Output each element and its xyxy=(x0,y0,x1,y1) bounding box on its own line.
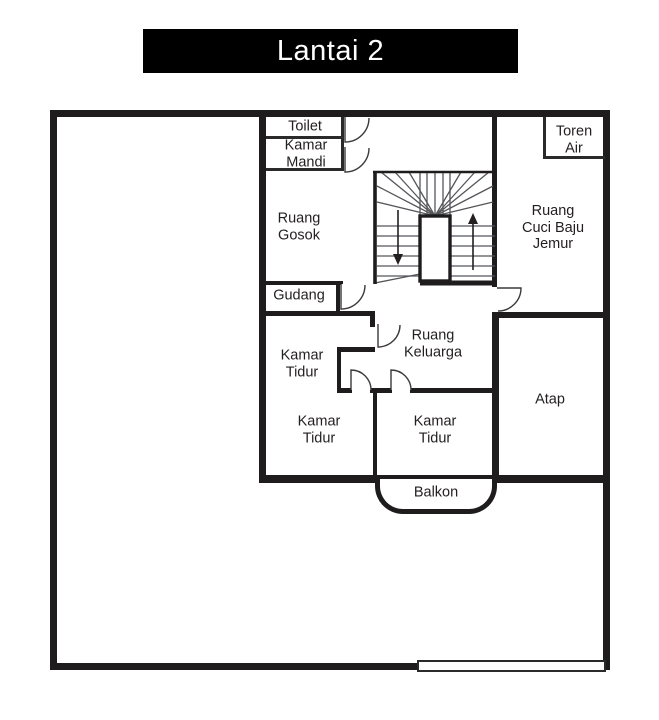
kamar-tidur-middle-door-arc xyxy=(377,324,401,348)
outer-boundary-wall xyxy=(50,110,610,670)
entrance-gate xyxy=(417,660,606,672)
kamar-mandi-door-arc xyxy=(344,147,370,173)
wall-bedroom-mid-right-upper xyxy=(370,315,375,327)
ruang-cuci-door-arc xyxy=(497,287,523,313)
wall-torenair-left xyxy=(543,117,546,159)
wall-bedroom-mid-step-v xyxy=(337,347,341,393)
toilet-door-arc xyxy=(344,117,370,143)
title-bar: Lantai 2 xyxy=(143,29,518,73)
room-label-toilet: Toilet xyxy=(288,119,322,136)
room-label-ruang-gosok: Ruang Gosok xyxy=(278,210,321,243)
room-label-ruang-cuci: Ruang Cuci Baju Jemur xyxy=(522,203,584,253)
wall-keluarga-bottom-3 xyxy=(410,388,497,393)
room-label-ruang-keluarga: Ruang Keluarga xyxy=(404,327,462,360)
stairs-down-arrow xyxy=(393,210,403,265)
room-label-kamar-mandi: Kamar Mandi xyxy=(285,137,328,170)
staircase xyxy=(373,170,497,288)
room-label-kamar-tidur-bottom-right: Kamar Tidur xyxy=(414,413,457,446)
kamar-tidur-left-door-arc xyxy=(350,369,372,391)
wall-gudang-top xyxy=(259,281,343,285)
room-label-gudang: Gudang xyxy=(273,288,325,305)
stairs-up-arrow xyxy=(468,213,478,270)
kamar-tidur-right-door-arc xyxy=(390,369,412,391)
page-title: Lantai 2 xyxy=(277,35,384,68)
room-label-kamar-tidur-bottom-left: Kamar Tidur xyxy=(298,413,341,446)
balkon-outline: Balkon xyxy=(375,479,497,514)
wall-bedroom-mid-step-h xyxy=(337,347,375,352)
room-label-toren-air: Toren Air xyxy=(556,123,592,156)
wall-gudang-bottom xyxy=(259,311,375,316)
wall-main-vertical xyxy=(259,110,266,483)
room-label-kamar-tidur-middle: Kamar Tidur xyxy=(281,347,324,380)
room-label-atap: Atap xyxy=(535,392,565,409)
wall-atap-left xyxy=(492,312,499,483)
floor-plan-page: Lantai 2 xyxy=(0,0,659,720)
room-label-balkon: Balkon xyxy=(414,484,458,501)
wall-bedrooms-divider xyxy=(373,393,377,475)
gudang-door-arc xyxy=(340,284,366,310)
